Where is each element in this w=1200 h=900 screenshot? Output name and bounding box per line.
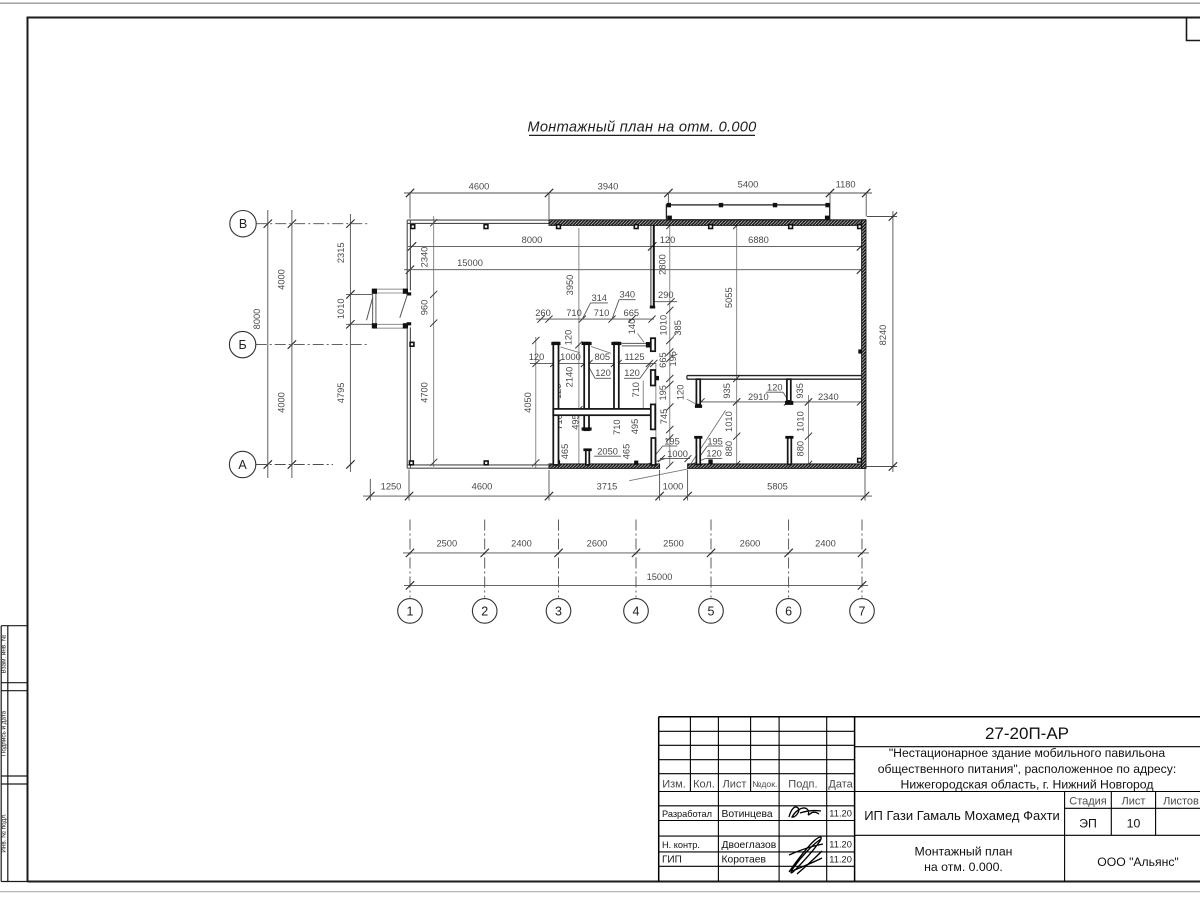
svg-text:120: 120 (563, 330, 573, 346)
svg-text:2: 2 (481, 604, 488, 618)
svg-text:Кол.: Кол. (693, 779, 715, 791)
svg-text:В: В (239, 217, 247, 231)
svg-text:"Нестационарное здание мобильн: "Нестационарное здание мобильного павиль… (889, 746, 1166, 760)
svg-text:5055: 5055 (724, 287, 734, 308)
svg-text:120: 120 (624, 368, 640, 378)
svg-text:880: 880 (724, 441, 734, 457)
svg-text:3950: 3950 (565, 275, 575, 296)
svg-text:1010: 1010 (336, 298, 346, 319)
svg-text:4600: 4600 (472, 482, 493, 492)
svg-text:314: 314 (591, 293, 607, 303)
svg-text:№док.: №док. (752, 779, 777, 789)
svg-text:260: 260 (535, 308, 551, 318)
svg-text:Коротаев: Коротаев (722, 855, 767, 866)
svg-text:195: 195 (668, 351, 678, 367)
svg-text:Н. контр.: Н. контр. (662, 840, 700, 850)
svg-text:Стадия: Стадия (1069, 796, 1107, 808)
svg-text:290: 290 (658, 290, 674, 300)
svg-text:15000: 15000 (647, 572, 673, 582)
svg-text:ООО "Альянс": ООО "Альянс" (1097, 855, 1179, 869)
svg-text:2800: 2800 (657, 254, 667, 275)
svg-text:745: 745 (659, 409, 669, 425)
svg-text:1125: 1125 (625, 352, 645, 362)
svg-text:465: 465 (621, 444, 631, 460)
svg-text:935: 935 (722, 383, 732, 399)
svg-text:2340: 2340 (419, 247, 429, 268)
svg-text:Монтажный план: Монтажный план (915, 845, 1013, 859)
svg-text:4000: 4000 (276, 269, 286, 290)
svg-text:3940: 3940 (598, 182, 619, 192)
svg-text:3: 3 (555, 604, 562, 618)
svg-text:11.20: 11.20 (829, 854, 852, 864)
svg-text:495: 495 (630, 419, 640, 435)
svg-text:15000: 15000 (457, 258, 483, 268)
svg-text:465: 465 (560, 444, 570, 460)
svg-text:665: 665 (624, 308, 640, 318)
svg-text:2340: 2340 (818, 392, 839, 402)
svg-text:195: 195 (658, 385, 668, 401)
svg-text:6880: 6880 (748, 235, 769, 245)
svg-text:2400: 2400 (511, 539, 532, 549)
svg-text:Изм.: Изм. (662, 779, 686, 791)
svg-text:3715: 3715 (597, 482, 618, 492)
svg-text:ЭП: ЭП (1079, 817, 1097, 831)
svg-text:710: 710 (612, 419, 622, 435)
svg-text:4000: 4000 (276, 392, 286, 413)
svg-text:Вотинцева: Вотинцева (722, 809, 773, 820)
svg-text:8240: 8240 (878, 325, 888, 346)
svg-text:11.20: 11.20 (829, 809, 852, 819)
svg-text:140: 140 (627, 319, 637, 335)
svg-text:Дата: Дата (828, 779, 853, 791)
svg-text:Лист: Лист (1122, 796, 1146, 808)
svg-text:1000: 1000 (667, 449, 688, 459)
svg-text:6: 6 (785, 604, 792, 618)
svg-text:120: 120 (595, 368, 611, 378)
svg-text:10: 10 (1127, 817, 1141, 831)
svg-text:Подп.: Подп. (788, 779, 817, 791)
svg-text:Подпись и дата: Подпись и дата (1, 710, 8, 756)
svg-text:2600: 2600 (740, 539, 761, 549)
svg-text:880: 880 (795, 441, 805, 457)
svg-text:4: 4 (633, 604, 640, 618)
svg-text:Листов: Листов (1163, 796, 1199, 808)
svg-text:120: 120 (706, 449, 722, 459)
svg-text:2140: 2140 (564, 367, 574, 388)
svg-text:120: 120 (529, 352, 545, 362)
svg-text:11.20: 11.20 (829, 840, 852, 850)
svg-text:8000: 8000 (252, 309, 262, 330)
svg-text:2910: 2910 (748, 392, 769, 402)
svg-text:120: 120 (767, 382, 783, 392)
svg-text:1000: 1000 (560, 352, 581, 362)
svg-text:Двоеглазов: Двоеглазов (722, 840, 777, 851)
svg-text:1010: 1010 (659, 315, 669, 336)
svg-text:7: 7 (859, 604, 866, 618)
svg-text:120: 120 (676, 385, 686, 401)
svg-text:5400: 5400 (738, 180, 759, 190)
svg-text:4050: 4050 (523, 392, 533, 413)
svg-text:5: 5 (708, 604, 715, 618)
svg-text:5805: 5805 (767, 482, 788, 492)
svg-text:ГИП: ГИП (662, 855, 682, 866)
svg-text:1000: 1000 (663, 482, 684, 492)
svg-text:27-20П-АР: 27-20П-АР (985, 724, 1069, 743)
svg-text:710: 710 (566, 308, 582, 318)
svg-text:Монтажный план на отм. 0.000: Монтажный план на отм. 0.000 (527, 120, 756, 136)
svg-text:2050: 2050 (597, 446, 618, 456)
svg-text:Б: Б (238, 338, 246, 352)
svg-text:Лист: Лист (723, 779, 747, 791)
svg-text:1010: 1010 (724, 411, 734, 432)
svg-text:195: 195 (664, 436, 680, 446)
svg-text:8000: 8000 (522, 235, 543, 245)
svg-text:Инв. № подл.: Инв. № подл. (1, 813, 8, 852)
svg-text:1250: 1250 (381, 482, 402, 492)
svg-text:340: 340 (620, 290, 636, 300)
svg-text:4700: 4700 (420, 382, 430, 403)
svg-text:960: 960 (420, 300, 430, 316)
svg-text:ИП Гази Гамаль Мохамед Фахти: ИП Гази Гамаль Мохамед Фахти (864, 808, 1060, 823)
svg-text:Разработал: Разработал (662, 809, 712, 819)
svg-text:495: 495 (571, 414, 581, 430)
svg-text:120: 120 (660, 235, 676, 245)
svg-text:665: 665 (658, 352, 668, 368)
svg-text:935: 935 (795, 383, 805, 399)
svg-text:805: 805 (595, 352, 611, 362)
svg-text:1010: 1010 (795, 411, 805, 432)
svg-text:общественного питания", распол: общественного питания", расположенное по… (878, 762, 1176, 776)
svg-text:2400: 2400 (815, 539, 836, 549)
svg-text:195: 195 (707, 436, 723, 446)
svg-text:Взам. инв. №: Взам. инв. № (1, 634, 8, 673)
svg-text:2500: 2500 (436, 539, 457, 549)
svg-text:1: 1 (407, 604, 414, 618)
svg-text:710: 710 (631, 382, 641, 398)
svg-text:Нижегородская область, г. Нижн: Нижегородская область, г. Нижний Новгоро… (901, 777, 1154, 791)
svg-text:А: А (238, 458, 247, 472)
svg-text:2500: 2500 (663, 539, 684, 549)
svg-text:1180: 1180 (836, 180, 856, 190)
svg-text:4795: 4795 (336, 383, 346, 404)
svg-text:710: 710 (594, 308, 610, 318)
svg-text:2600: 2600 (587, 539, 608, 549)
svg-text:4600: 4600 (469, 182, 490, 192)
svg-text:на отм. 0.000.: на отм. 0.000. (924, 860, 1003, 874)
svg-text:385: 385 (673, 320, 683, 336)
svg-text:2315: 2315 (336, 242, 346, 263)
